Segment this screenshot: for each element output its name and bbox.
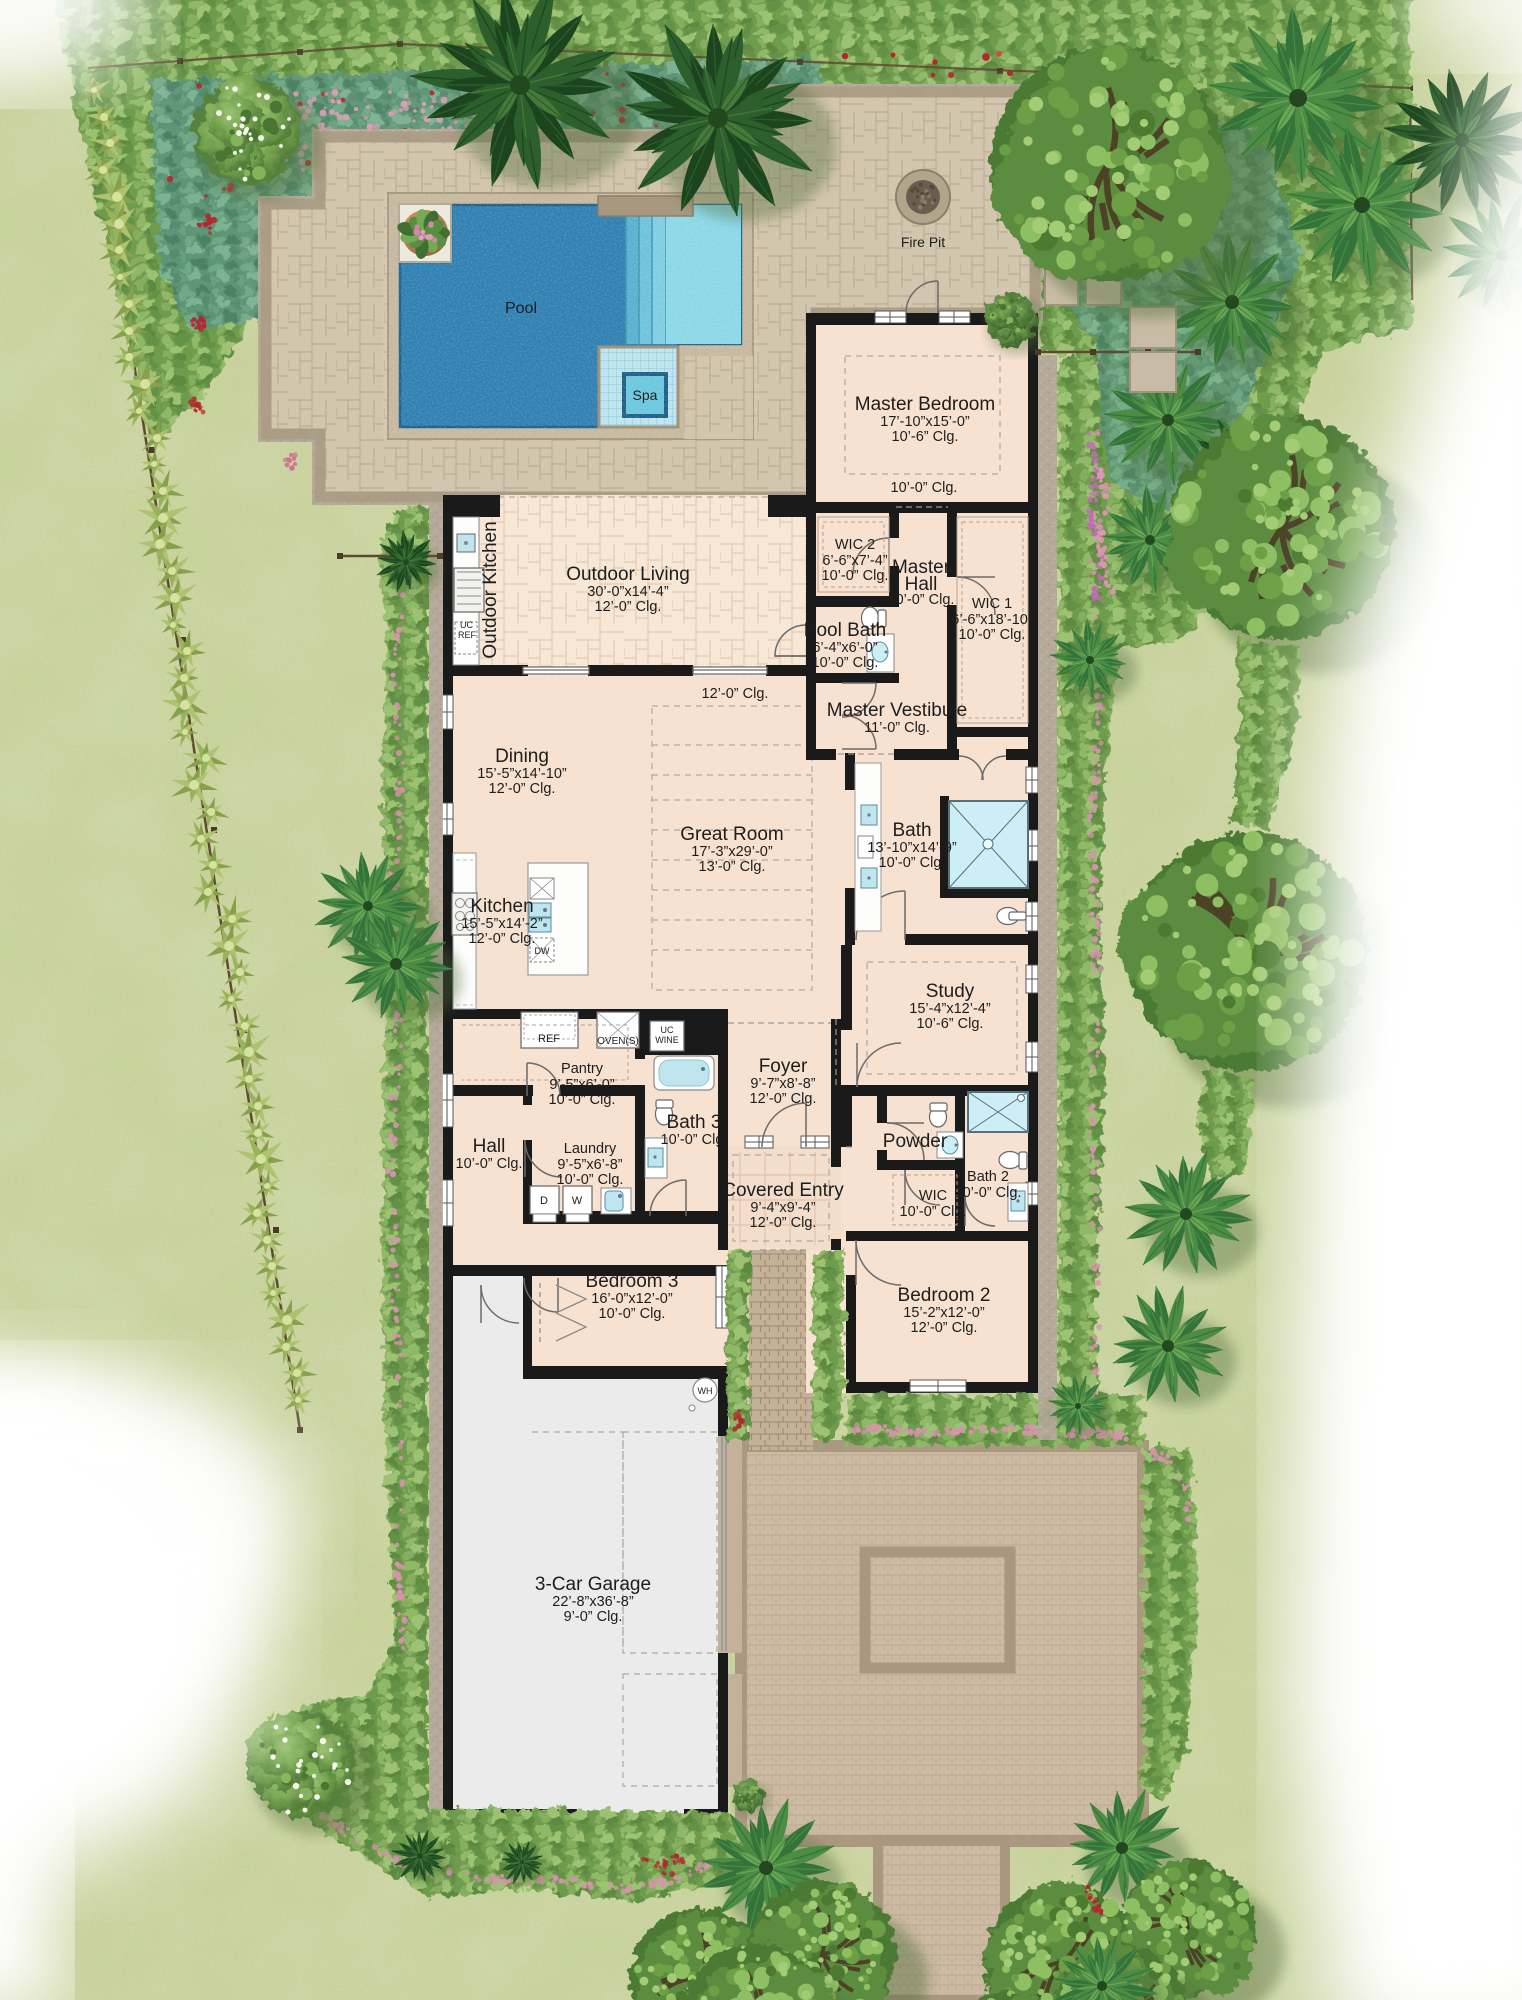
svg-text:6’-6”x18’-10”: 6’-6”x18’-10”	[951, 612, 1033, 628]
svg-text:10’-0” Clg.: 10’-0” Clg.	[557, 1172, 624, 1188]
svg-text:Outdoor Living: Outdoor Living	[566, 564, 690, 585]
svg-text:10’-0” Clg.: 10’-0” Clg.	[900, 1204, 967, 1220]
svg-text:12’-0” Clg.: 12’-0” Clg.	[469, 931, 536, 947]
svg-text:10’-0” Clg.: 10’-0” Clg.	[879, 855, 946, 871]
svg-text:Bedroom 3: Bedroom 3	[586, 1271, 679, 1292]
svg-text:9’-7”x8’-8”: 9’-7”x8’-8”	[750, 1076, 815, 1092]
svg-text:Master Vestibule: Master Vestibule	[827, 700, 967, 721]
svg-text:Foyer: Foyer	[759, 1056, 808, 1077]
svg-text:Pool Bath: Pool Bath	[804, 620, 886, 641]
svg-text:10’-0” Clg.: 10’-0” Clg.	[891, 480, 958, 496]
svg-text:11’-0” Clg.: 11’-0” Clg.	[864, 720, 930, 736]
svg-text:10’-0” Clg.: 10’-0” Clg.	[888, 592, 955, 608]
svg-text:13’-0” Clg.: 13’-0” Clg.	[699, 859, 766, 875]
svg-text:15’-4”x12’-4”: 15’-4”x12’-4”	[909, 1001, 991, 1017]
svg-text:13’-10”x14’-9”: 13’-10”x14’-9”	[867, 840, 957, 856]
svg-text:Pool: Pool	[505, 300, 537, 317]
svg-text:Master Bedroom: Master Bedroom	[855, 394, 995, 415]
svg-text:Laundry: Laundry	[564, 1141, 617, 1157]
svg-text:WIC: WIC	[919, 1188, 947, 1204]
svg-text:10’-0” Clg.: 10’-0” Clg.	[822, 568, 889, 584]
svg-text:10’-0” Clg.: 10’-0” Clg.	[549, 1092, 616, 1108]
svg-text:16’-0”x12’-0”: 16’-0”x12’-0”	[591, 1291, 673, 1307]
svg-text:Bath 3: Bath 3	[667, 1112, 722, 1133]
svg-text:10’-0” Clg.: 10’-0” Clg.	[661, 1132, 728, 1148]
svg-text:22’-8”x36’-8”: 22’-8”x36’-8”	[552, 1594, 634, 1610]
svg-text:10’-6” Clg.: 10’-6” Clg.	[917, 1016, 984, 1032]
svg-text:WIC 2: WIC 2	[835, 537, 875, 553]
svg-text:12’-0” Clg.: 12’-0” Clg.	[595, 599, 662, 615]
svg-text:3-Car Garage: 3-Car Garage	[535, 1574, 651, 1595]
svg-text:9’-5”x6’-0”: 9’-5”x6’-0”	[549, 1077, 614, 1093]
svg-text:9’-4”x9’-4”: 9’-4”x9’-4”	[750, 1200, 815, 1216]
svg-text:Covered Entry: Covered Entry	[722, 1180, 844, 1201]
svg-text:Great Room: Great Room	[680, 824, 783, 845]
svg-text:Powder: Powder	[883, 1131, 948, 1152]
svg-text:W: W	[572, 1195, 583, 1207]
svg-text:Study: Study	[926, 981, 975, 1002]
svg-text:6’-6”x7’-4”: 6’-6”x7’-4”	[822, 553, 887, 569]
svg-text:WINE: WINE	[655, 1035, 679, 1045]
svg-text:12’-0” Clg.: 12’-0” Clg.	[702, 686, 769, 702]
svg-text:Outdoor Kitchen: Outdoor Kitchen	[480, 521, 501, 658]
svg-text:Pantry: Pantry	[561, 1061, 604, 1077]
svg-text:Dining: Dining	[495, 746, 549, 767]
svg-text:Spa: Spa	[633, 387, 658, 403]
svg-text:REF: REF	[458, 630, 477, 640]
svg-text:12’-0” Clg.: 12’-0” Clg.	[489, 781, 556, 797]
svg-text:10’-6” Clg.: 10’-6” Clg.	[892, 429, 959, 445]
svg-text:10’-0” Clg.: 10’-0” Clg.	[599, 1306, 666, 1322]
svg-text:DW: DW	[535, 946, 550, 956]
svg-text:15’-5”x14’-10”: 15’-5”x14’-10”	[477, 766, 567, 782]
svg-text:Fire Pit: Fire Pit	[901, 234, 945, 250]
svg-text:Bedroom 2: Bedroom 2	[898, 1285, 991, 1306]
svg-text:REF: REF	[538, 1033, 560, 1045]
svg-text:10’-0” Clg.: 10’-0” Clg.	[812, 655, 879, 671]
svg-text:WH: WH	[698, 1386, 713, 1396]
svg-text:12’-0” Clg.: 12’-0” Clg.	[911, 1320, 978, 1336]
svg-text:15’-2”x12’-0”: 15’-2”x12’-0”	[903, 1305, 985, 1321]
svg-text:30’-0”x14’-4”: 30’-0”x14’-4”	[587, 584, 669, 600]
svg-text:Kitchen: Kitchen	[470, 896, 533, 917]
svg-text:12’-0” Clg.: 12’-0” Clg.	[750, 1091, 817, 1107]
svg-text:9’-0” Clg.: 9’-0” Clg.	[564, 1609, 623, 1625]
svg-text:10’-0” Clg.: 10’-0” Clg.	[959, 627, 1026, 643]
svg-text:12’-0” Clg.: 12’-0” Clg.	[750, 1215, 817, 1231]
svg-text:OVEN(S): OVEN(S)	[597, 1036, 639, 1047]
svg-text:15’-5”x14’-2”: 15’-5”x14’-2”	[461, 916, 543, 932]
svg-text:Bath: Bath	[892, 820, 931, 841]
svg-text:UC: UC	[460, 620, 473, 630]
svg-text:10’-0” Clg.: 10’-0” Clg.	[955, 1185, 1022, 1201]
svg-text:UC: UC	[661, 1025, 674, 1035]
svg-text:17’-3”x29’-0”: 17’-3”x29’-0”	[691, 844, 773, 860]
svg-text:9’-5”x6’-8”: 9’-5”x6’-8”	[557, 1157, 622, 1173]
svg-text:6’-4”x6’-0”: 6’-4”x6’-0”	[812, 640, 877, 656]
svg-text:10’-0” Clg.: 10’-0” Clg.	[456, 1156, 523, 1172]
svg-text:17’-10”x15’-0”: 17’-10”x15’-0”	[880, 414, 970, 430]
svg-text:WIC 1: WIC 1	[972, 596, 1012, 612]
svg-text:Bath 2: Bath 2	[967, 1169, 1009, 1185]
svg-text:Hall: Hall	[473, 1136, 506, 1157]
svg-text:D: D	[540, 1195, 548, 1207]
